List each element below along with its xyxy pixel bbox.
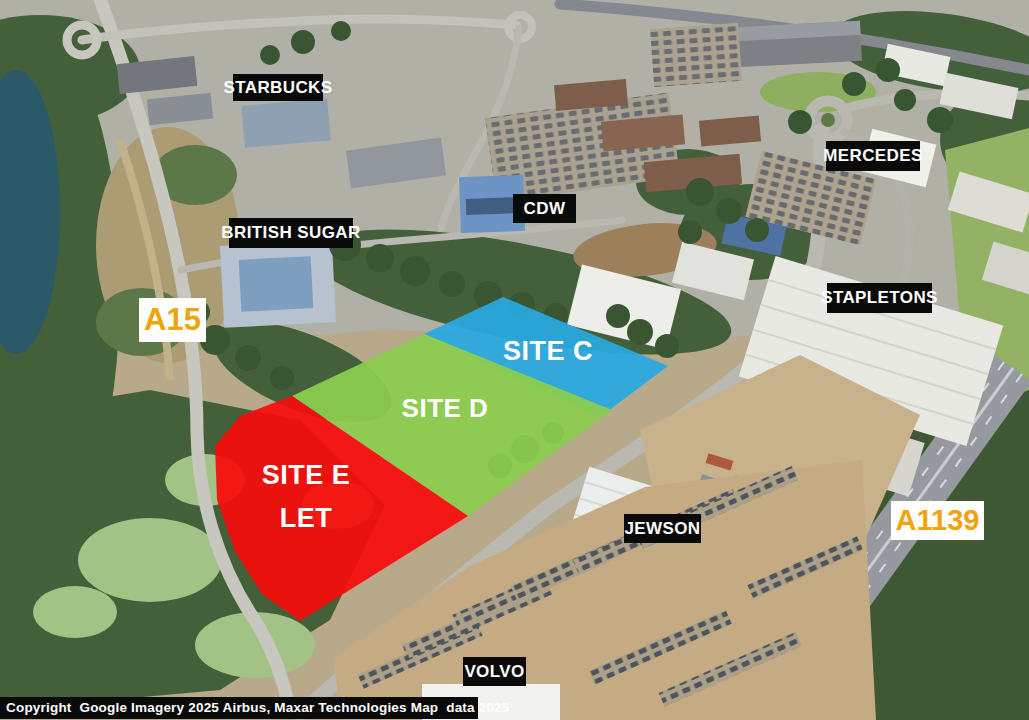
site-c-label: SITE C [493, 336, 603, 367]
roundabout-centre-green [821, 113, 835, 127]
site-e-label: SITE E [250, 460, 362, 491]
label-a15: A15 [139, 298, 206, 342]
label-a1139: A1139 [891, 501, 984, 540]
label-starbucks: STARBUCKS [233, 74, 323, 101]
copyright-attribution: Copyright Google Imagery 2025 Airbus, Ma… [0, 697, 478, 719]
aerial-site-map: SITE C SITE D SITE E LET STARBUCKS BRITI… [0, 0, 1029, 720]
label-cdw: CDW [513, 194, 576, 223]
site-d-label: SITE D [390, 393, 500, 424]
label-mercedes: MERCEDES [826, 141, 920, 171]
starbucks-building [241, 98, 330, 147]
site-e-let-label: LET [250, 503, 362, 534]
label-stapletons: STAPLETONS [827, 283, 932, 313]
label-british-sugar: BRITISH SUGAR [229, 218, 353, 248]
label-volvo: VOLVO [463, 657, 526, 686]
label-jewson: JEWSON [624, 514, 701, 543]
